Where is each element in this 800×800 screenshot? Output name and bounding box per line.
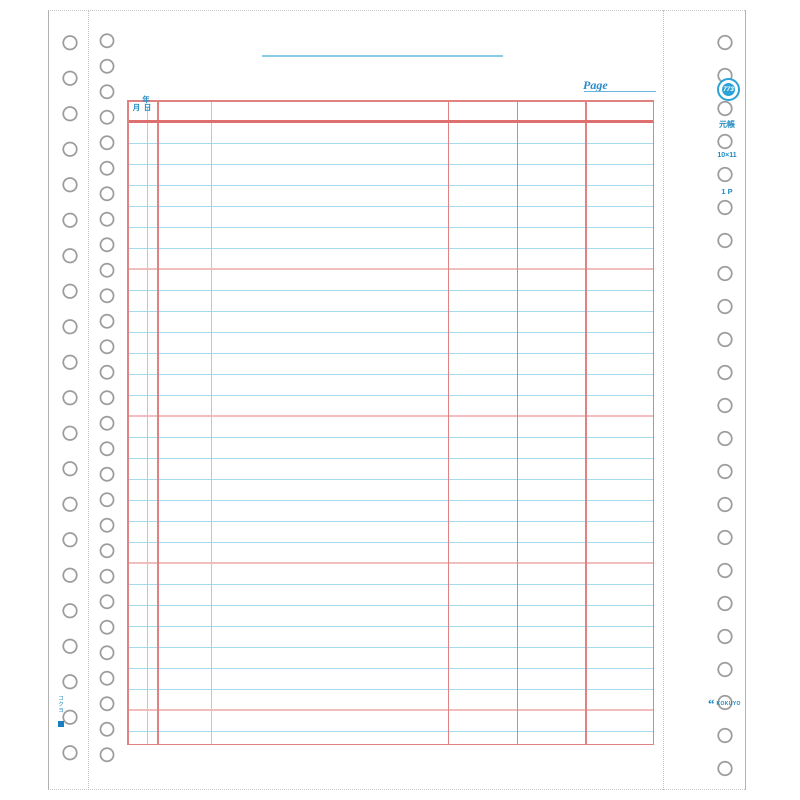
- date-column-rule: [157, 100, 159, 745]
- product-badge-number: 773: [722, 83, 736, 97]
- spine-mark-square: [58, 721, 64, 727]
- continuous-form-photo: Page 年 月 日 773 元帳 10×11 1 P コクヨ “ KOKUYO: [0, 0, 800, 800]
- form-size-label: 10×11: [705, 152, 749, 159]
- day-divider-blue: [147, 107, 148, 745]
- account-title-line: [262, 55, 503, 57]
- sheet-left-perforation: [88, 10, 89, 790]
- accent-lines-pink: [129, 123, 652, 744]
- form-parts-label: 1 P: [705, 187, 749, 196]
- description-divider-blue: [211, 100, 212, 745]
- amount-column-rule-2: [517, 100, 519, 745]
- sprocket-holes-left: [99, 28, 115, 768]
- sprocket-holes-left-back: [62, 25, 78, 771]
- table-right-border: [653, 100, 655, 745]
- page-underline: [584, 91, 656, 92]
- fold-line-bottom: [48, 789, 745, 790]
- sheet-right-perforation: [663, 10, 664, 790]
- spine-mark: コクヨ: [57, 695, 63, 713]
- table-bottom-border: [128, 744, 654, 746]
- kokuyo-logo-icon: “: [708, 699, 715, 709]
- header-month: 月: [131, 104, 142, 112]
- kokuyo-name: KOKUYO: [717, 701, 741, 707]
- header-day: 日: [142, 104, 153, 112]
- table-left-border: [127, 100, 129, 745]
- form-type-label: 元帳: [705, 119, 749, 130]
- amount-column-rule-1: [448, 100, 450, 745]
- table-header-rule: [128, 120, 654, 123]
- fold-line-top: [48, 10, 745, 11]
- back-sheet-left-edge: [48, 10, 49, 790]
- sprocket-holes-right: [717, 26, 733, 785]
- kokuyo-brand: “ KOKUYO: [708, 699, 741, 709]
- product-badge: 773: [717, 78, 740, 101]
- table-top-border: [128, 100, 654, 102]
- amount-column-rule-3: [585, 100, 587, 745]
